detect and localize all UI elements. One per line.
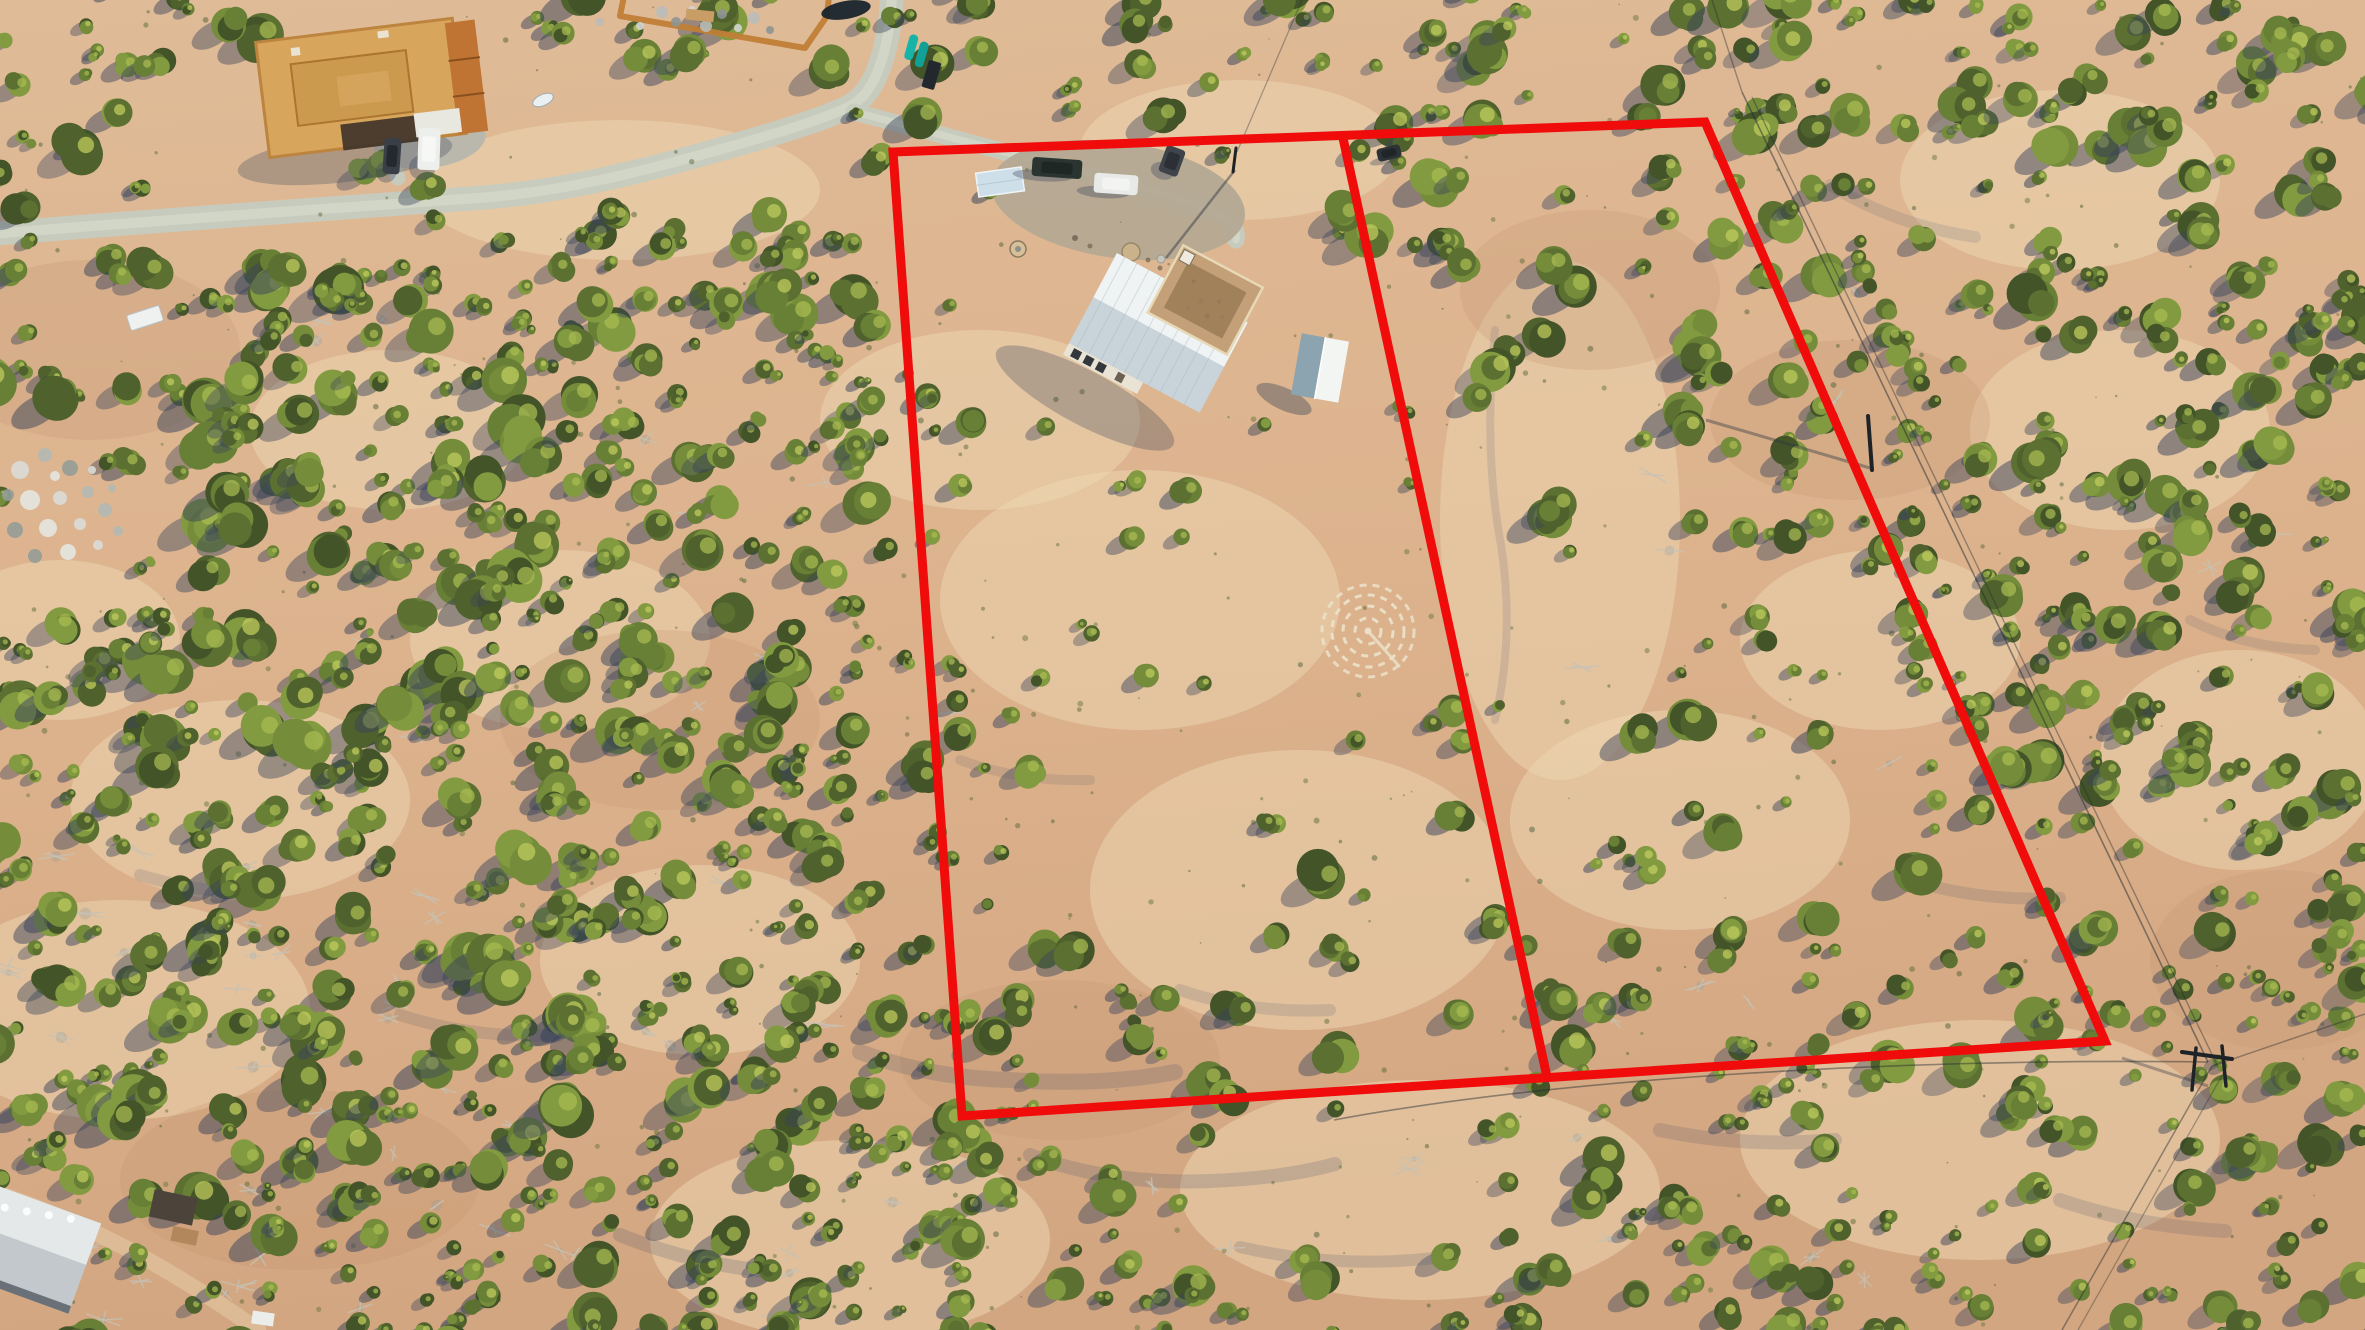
aerial-photo-screenshot	[0, 0, 2365, 1330]
aerial-photograph	[0, 0, 2365, 1330]
